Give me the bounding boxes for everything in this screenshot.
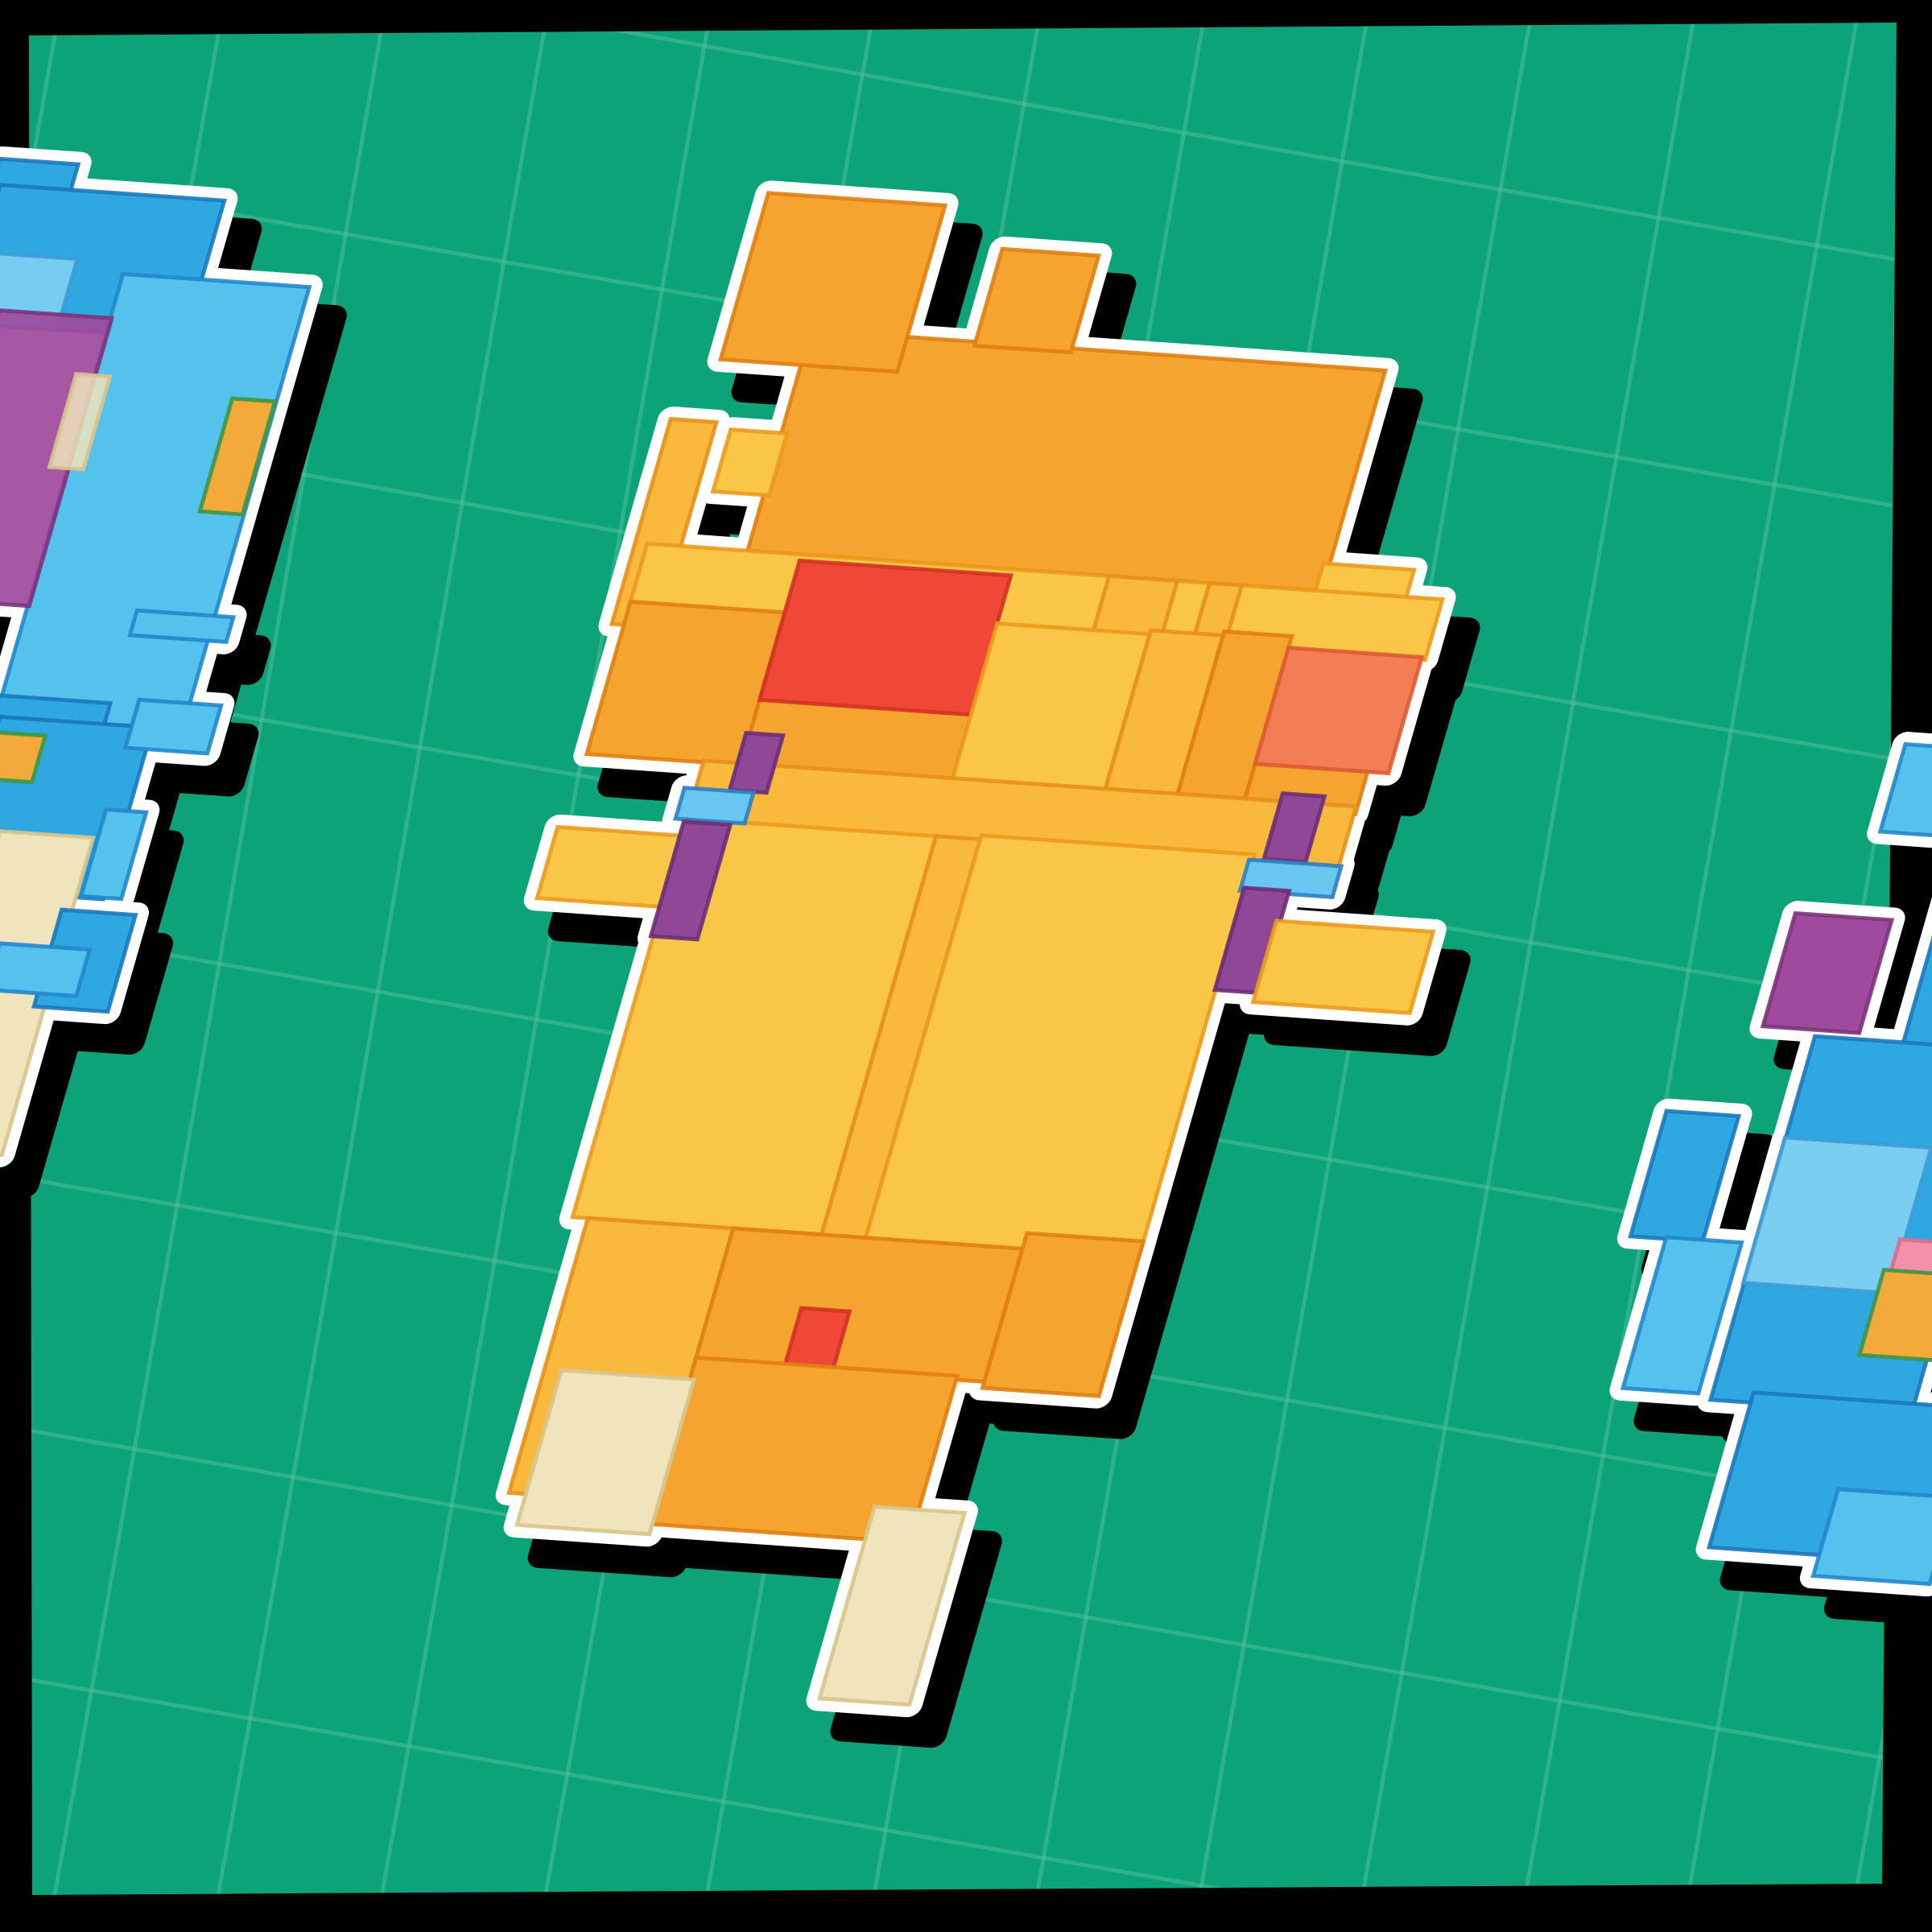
illustration-stage [0, 0, 1932, 1932]
tile-tab-right-1 [130, 610, 233, 642]
scene-svg [0, 0, 1932, 1932]
tile-lower-mid [695, 1228, 1022, 1381]
tile-light-bottom [0, 943, 89, 997]
tile-wing-right [1253, 921, 1434, 1013]
tile-red-block [760, 560, 1011, 714]
tile-tab-right-2 [126, 700, 221, 753]
tile-tab-blue-left [675, 788, 753, 824]
